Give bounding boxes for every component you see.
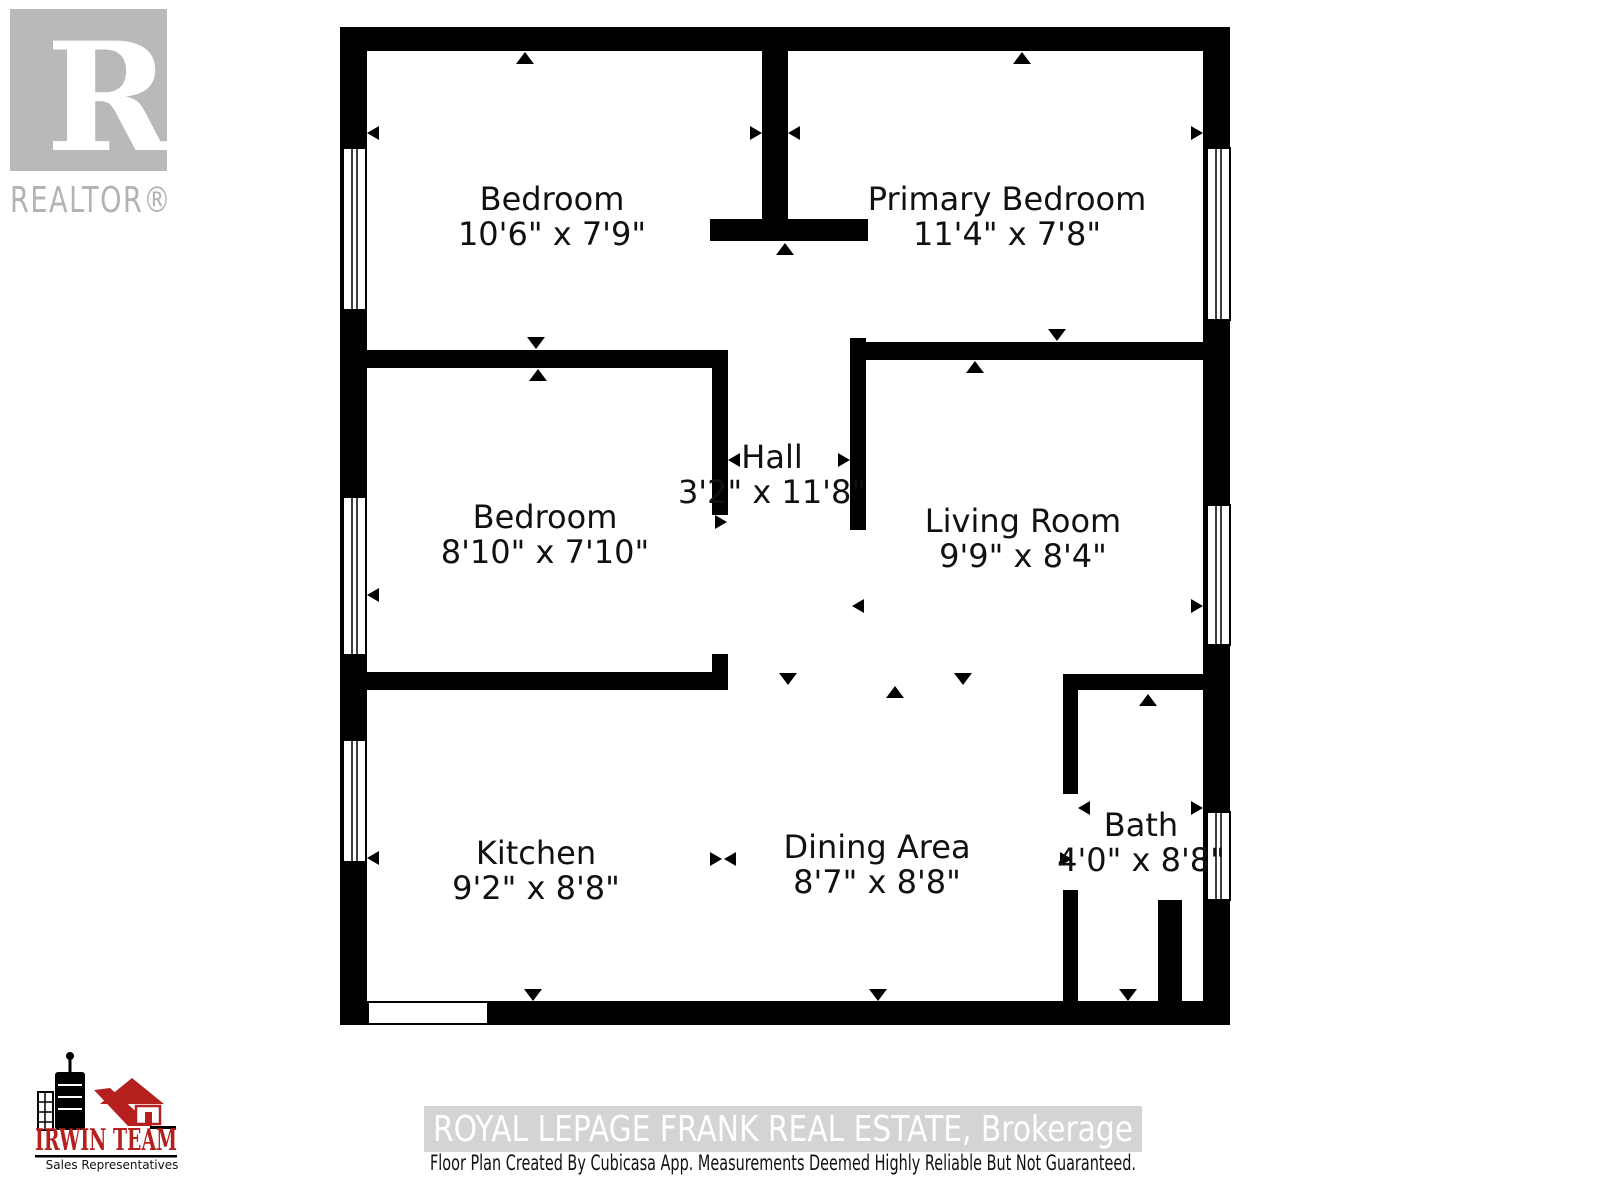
wall-hall-left-stub bbox=[712, 654, 728, 690]
room-labels-layer: Bedroom 10'6" x 7'9" Primary Bedroom 11'… bbox=[441, 180, 1225, 907]
room-label-living-room: Living Room bbox=[925, 502, 1121, 540]
tower-icon bbox=[55, 1072, 85, 1130]
realtor-logo-icon: R REALTOR® bbox=[10, 9, 172, 221]
room-dims-bedroom1: 10'6" x 7'9" bbox=[458, 215, 646, 253]
wall-bath-left-lower bbox=[1063, 890, 1078, 1003]
wall-hall-top bbox=[710, 219, 868, 241]
room-label-dining-area: Dining Area bbox=[783, 828, 970, 866]
room-label-bath: Bath bbox=[1104, 806, 1178, 844]
room-dims-hall: 3'2" x 11'8" bbox=[678, 473, 866, 511]
wall-outer-top bbox=[340, 27, 1230, 51]
red-house-icon bbox=[94, 1078, 164, 1126]
room-dims-bath: 4'0" x 8'8" bbox=[1057, 841, 1225, 879]
room-label-hall: Hall bbox=[741, 438, 802, 476]
wall-mid-right bbox=[850, 342, 1206, 360]
window-primary-bedroom bbox=[1207, 148, 1230, 320]
room-dims-living-room: 9'9" x 8'4" bbox=[939, 537, 1107, 575]
irwin-team-text: IRWIN TEAM bbox=[35, 1123, 177, 1158]
realtor-logo-r: R bbox=[46, 10, 172, 186]
brokerage-watermark: ROYAL LEPAGE FRANK REAL ESTATE, Brokerag… bbox=[433, 1109, 1133, 1150]
entry-door bbox=[368, 1002, 488, 1024]
disclaimer-text: Floor Plan Created By Cubicasa App. Meas… bbox=[430, 1151, 1136, 1175]
wall-bath-stub bbox=[1158, 900, 1182, 1003]
footer: ROYAL LEPAGE FRANK REAL ESTATE, Brokerag… bbox=[424, 1106, 1142, 1175]
window-bedroom1 bbox=[343, 148, 366, 310]
room-dims-bedroom2: 8'10" x 7'10" bbox=[441, 533, 649, 571]
wall-bedroom2-bottom bbox=[367, 672, 727, 690]
room-label-bedroom2: Bedroom bbox=[473, 498, 618, 536]
realtor-logo-text: REALTOR® bbox=[10, 180, 172, 221]
room-label-bedroom1: Bedroom bbox=[480, 180, 625, 218]
wall-bath-top bbox=[1063, 674, 1206, 690]
floor-plan-page: R REALTOR® bbox=[0, 0, 1600, 1200]
irwin-team-logo-icon: IRWIN TEAM Sales Representatives bbox=[35, 1052, 178, 1172]
window-living-room bbox=[1207, 505, 1230, 645]
wall-bath-left-upper bbox=[1063, 674, 1078, 794]
wall-bedroom-divider bbox=[762, 51, 788, 221]
room-dims-primary: 11'4" x 7'8" bbox=[913, 215, 1101, 253]
room-dims-kitchen: 9'2" x 8'8" bbox=[452, 869, 620, 907]
floor-plan-svg: R REALTOR® bbox=[0, 0, 1600, 1200]
room-label-kitchen: Kitchen bbox=[476, 834, 596, 872]
window-bedroom2 bbox=[343, 497, 366, 655]
room-label-primary: Primary Bedroom bbox=[868, 180, 1147, 218]
wall-mid-left bbox=[367, 350, 712, 368]
window-kitchen bbox=[343, 740, 366, 862]
irwin-subtitle-text: Sales Representatives bbox=[46, 1158, 179, 1172]
room-dims-dining-area: 8'7" x 8'8" bbox=[793, 863, 961, 901]
